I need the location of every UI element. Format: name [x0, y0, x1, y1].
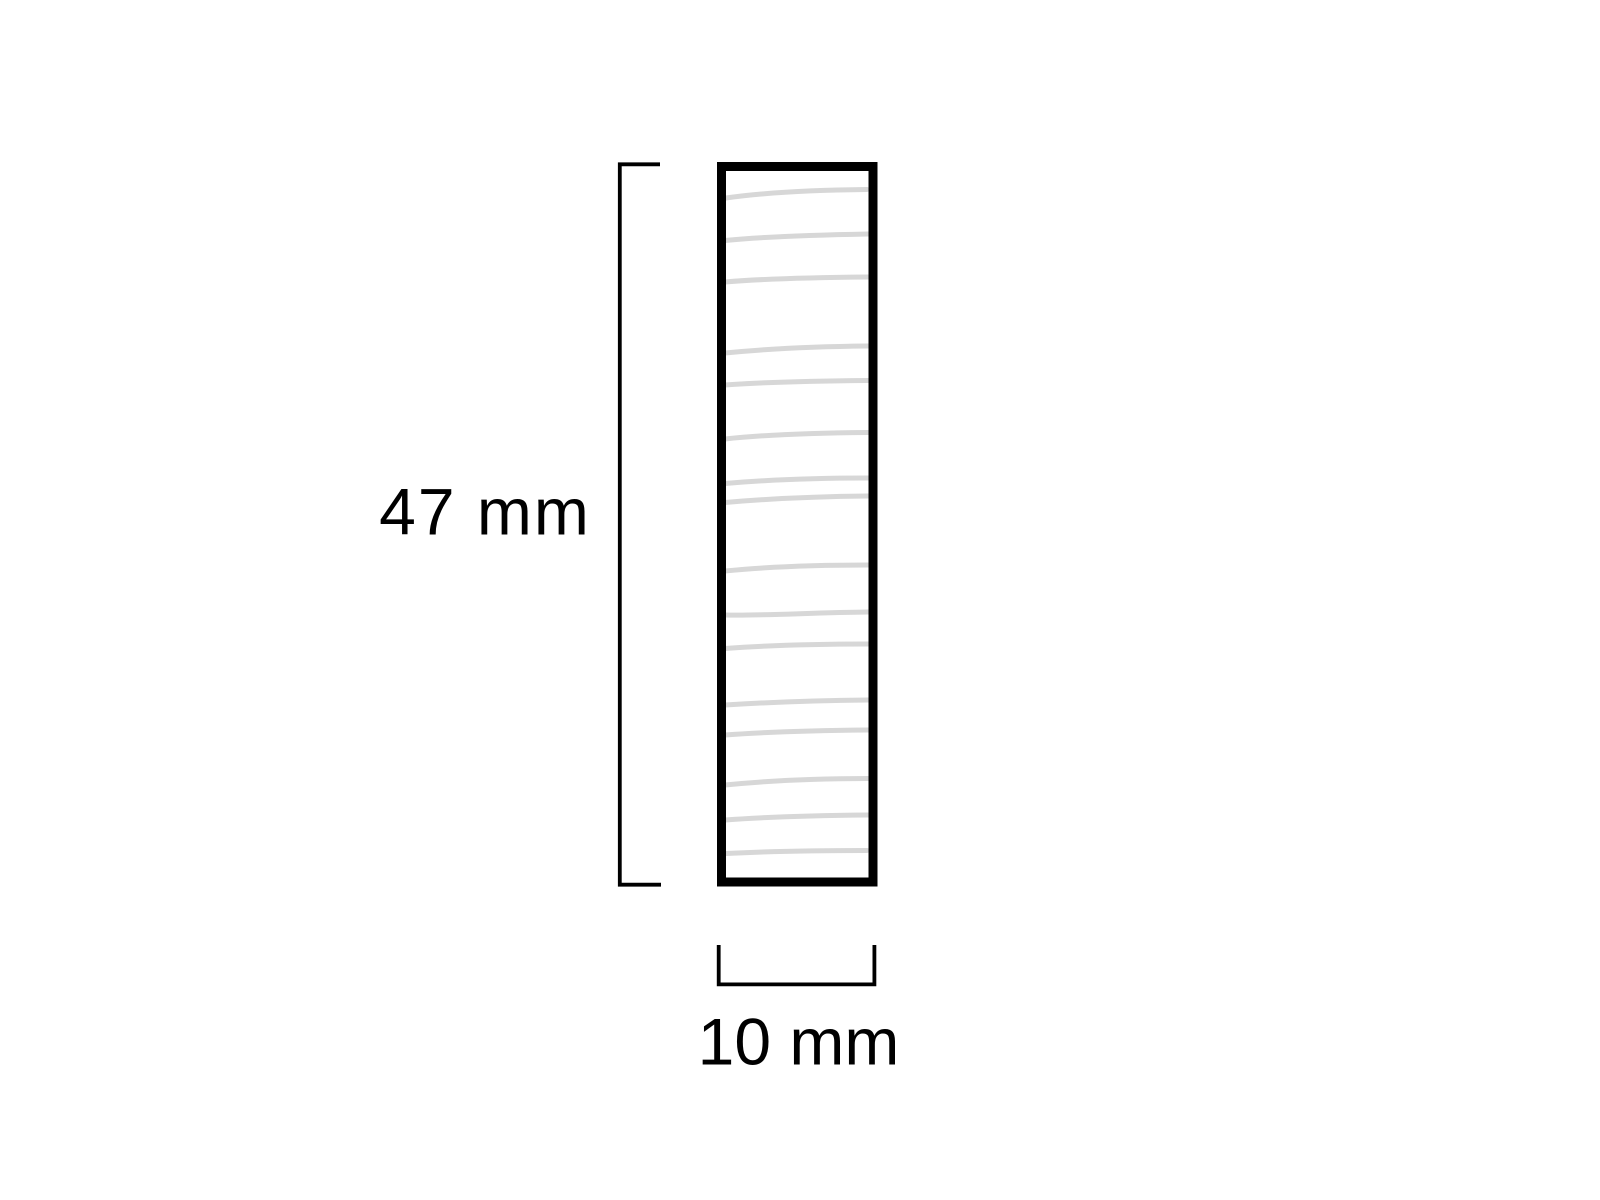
- svg-text:47 mm: 47 mm: [379, 475, 591, 549]
- svg-text:10 mm: 10 mm: [698, 1005, 900, 1079]
